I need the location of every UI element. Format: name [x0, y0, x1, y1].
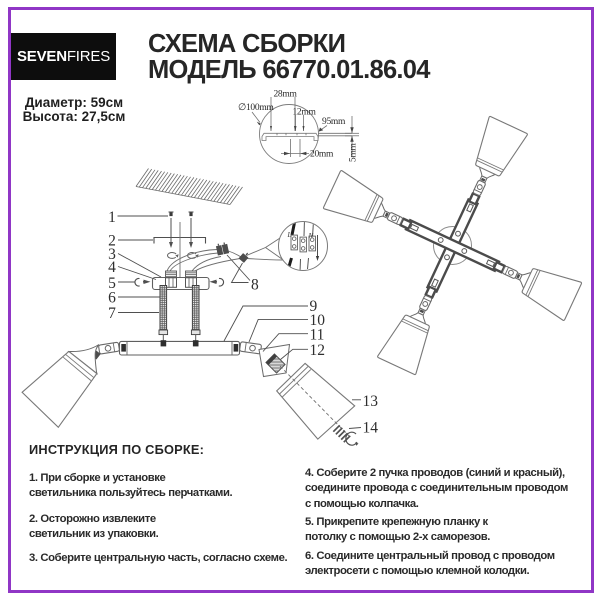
svg-text:95mm: 95mm: [322, 117, 346, 127]
svg-text:5mm: 5mm: [349, 142, 359, 162]
svg-text:N: N: [308, 232, 314, 240]
svg-text:1: 1: [108, 209, 116, 226]
svg-text:12mm: 12mm: [292, 108, 316, 118]
svg-text:13: 13: [363, 393, 379, 410]
svg-text:14: 14: [363, 420, 379, 437]
svg-text:L: L: [287, 231, 292, 239]
svg-text:12: 12: [310, 342, 326, 359]
svg-text:28mm: 28mm: [273, 90, 297, 100]
svg-text:7: 7: [108, 305, 116, 322]
svg-text:6: 6: [108, 290, 116, 307]
svg-text:8: 8: [251, 277, 259, 294]
svg-text:20mm: 20mm: [310, 150, 334, 160]
svg-text:4: 4: [108, 259, 116, 276]
svg-text:∅100mm: ∅100mm: [238, 102, 274, 113]
svg-text:11: 11: [310, 327, 325, 344]
